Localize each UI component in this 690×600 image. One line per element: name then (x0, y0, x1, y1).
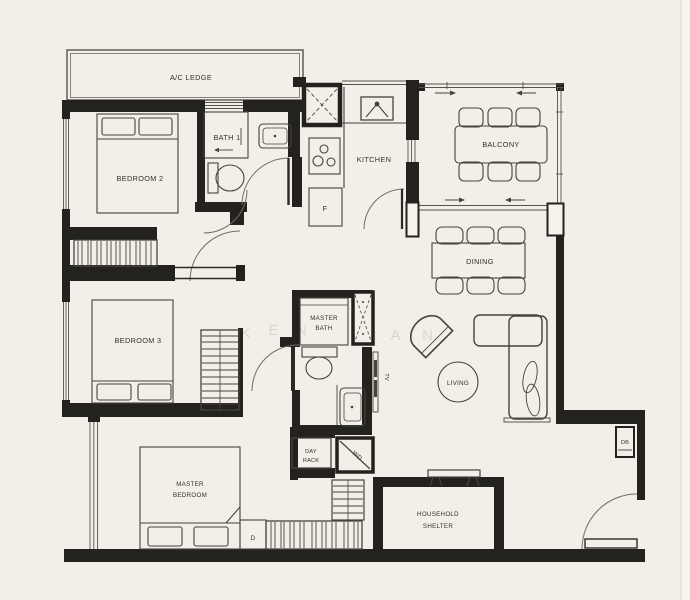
wall-segment (373, 477, 383, 552)
wall-segment (556, 233, 564, 410)
db-label: DB (621, 440, 629, 446)
bath1-label: BATH 1 (213, 133, 240, 142)
pillar (548, 204, 564, 236)
bedroom2-label: BEDROOM 2 (117, 174, 164, 183)
master-bath-label-1: MASTER (310, 315, 338, 322)
floorplan-page: K E N A N (0, 0, 690, 600)
wall-segment (62, 227, 157, 240)
household-shelter-label-2: SHELTER (423, 523, 453, 530)
wall-segment (406, 80, 419, 140)
fridge-label: F (323, 204, 328, 213)
wall-segment (292, 290, 300, 347)
watermark-letter: E (268, 322, 279, 339)
wall-segment (556, 410, 645, 424)
wall-segment (62, 209, 70, 302)
household-shelter-label-1: HOUSEHOLD (417, 511, 459, 518)
wall-segment (62, 100, 70, 119)
wall-segment (362, 347, 372, 435)
wall-segment (292, 157, 302, 207)
wall-segment (62, 265, 175, 281)
balcony-label: BALCONY (482, 140, 519, 149)
wall-segment (88, 417, 100, 422)
bedroom3-label: BEDROOM 3 (115, 336, 162, 345)
kitchen-shaft-icon (304, 85, 340, 125)
wall-segment (236, 265, 245, 281)
pillar (407, 203, 419, 237)
wall-segment (290, 468, 335, 478)
wall-segment (64, 549, 645, 562)
master-bedroom-label-2: BEDROOM (173, 492, 207, 499)
page-edge (681, 0, 690, 600)
dining-label: DINING (466, 257, 494, 266)
wall-segment (637, 424, 645, 500)
day-rack-label-1: DAY (305, 449, 317, 455)
day-rack-label-2: RACK (303, 458, 319, 464)
wall-segment (62, 100, 205, 112)
ac-ledge-label: A/C LEDGE (170, 73, 212, 82)
watermark-letter: N (422, 327, 434, 344)
wall-segment (288, 108, 300, 157)
wall-segment (406, 162, 419, 202)
tv-label: TV (383, 373, 389, 381)
wall-segment (373, 477, 503, 487)
dresser-label: D (251, 535, 256, 542)
master-bath-shaft-icon (353, 292, 373, 344)
master-bedroom-label-1: MASTER (176, 481, 204, 488)
wardrobe-icon (201, 330, 239, 410)
floorplan-drawing: K E N A N (0, 0, 690, 600)
master-bath-label-2: BATH (315, 325, 332, 332)
watermark-letter: A (390, 327, 401, 344)
kitchen-label: KITCHEN (357, 155, 391, 164)
living-label: LIVING (447, 380, 469, 387)
wall-segment (494, 477, 504, 552)
